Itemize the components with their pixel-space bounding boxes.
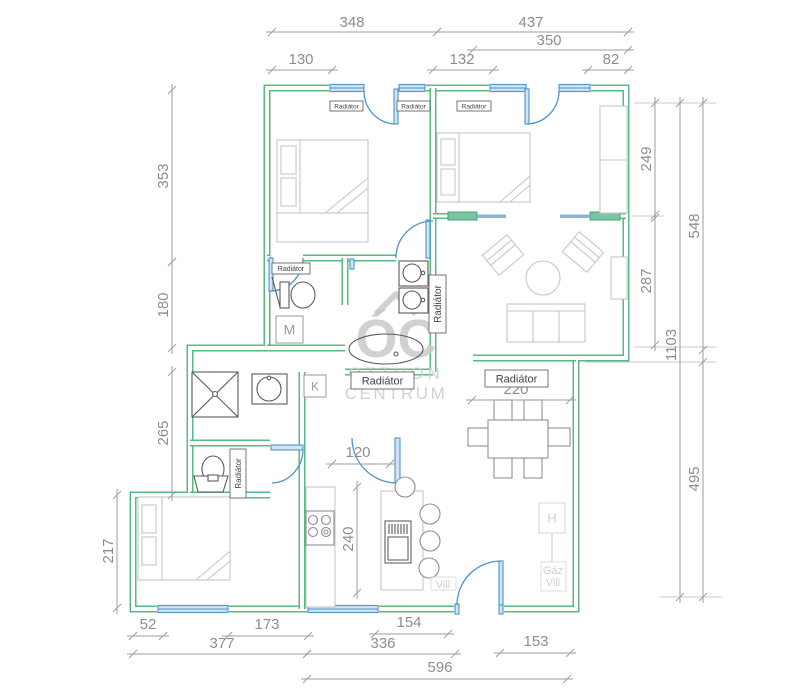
door-icon bbox=[364, 89, 398, 124]
window-icon bbox=[158, 606, 228, 613]
radiator-label-text: Radiátor bbox=[362, 375, 404, 387]
dimension-value: 249 bbox=[638, 146, 655, 171]
dimension-value: 353 bbox=[155, 163, 172, 188]
dimension-132: 132 bbox=[427, 51, 499, 74]
dimension-240: 240 bbox=[340, 481, 361, 599]
utility-label: Vill bbox=[546, 577, 560, 589]
radiator-label: Radiátor bbox=[272, 263, 310, 274]
dimension-353: 353 bbox=[155, 84, 176, 268]
utility-label: Vill bbox=[436, 579, 450, 591]
dimension-value: 82 bbox=[603, 51, 620, 68]
radiator-label-text: Radiátor bbox=[433, 284, 444, 322]
dimension-value: 180 bbox=[155, 292, 172, 317]
dimension-287: 287 bbox=[638, 212, 659, 351]
dimension-value: 495 bbox=[686, 466, 703, 491]
room-marker-text: H bbox=[547, 511, 556, 526]
room-marker-M: M bbox=[276, 316, 303, 343]
toilet-icon bbox=[194, 456, 228, 492]
dining-set-icon bbox=[468, 400, 570, 478]
room-marker-text: M bbox=[284, 322, 296, 338]
dimension-value: 153 bbox=[523, 633, 548, 650]
floor-plan-canvas: ÓC OTTHON CENTRUM bbox=[0, 0, 800, 696]
window-icon bbox=[559, 85, 590, 92]
armchair-icon bbox=[482, 235, 523, 275]
dimension-value: 350 bbox=[536, 32, 561, 49]
dimension-180: 180 bbox=[155, 256, 176, 354]
stove-icon bbox=[306, 511, 334, 545]
wardrobe-icon bbox=[600, 106, 627, 213]
window-icon bbox=[399, 85, 425, 92]
dimension-120: 120 bbox=[326, 444, 396, 468]
dimension-value: 287 bbox=[638, 268, 655, 293]
radiator-label-text: Radiátor bbox=[401, 103, 426, 110]
radiator-label-text: Radiátor bbox=[334, 103, 359, 110]
dimension-548: 548 bbox=[686, 97, 707, 356]
window-icon bbox=[490, 85, 526, 92]
dimension-value: 120 bbox=[345, 444, 370, 461]
dimension-336: 336 bbox=[301, 635, 461, 658]
dimension-value: 437 bbox=[518, 14, 543, 31]
dimension-value: 265 bbox=[155, 420, 172, 445]
watermark-initials: ÓC bbox=[356, 309, 437, 369]
radiator-label: Radiátor bbox=[397, 101, 430, 111]
dimension-130: 130 bbox=[266, 51, 338, 74]
dimension-249: 249 bbox=[638, 97, 659, 221]
sink-icon bbox=[252, 374, 287, 404]
radiator-label: Radiátor bbox=[330, 101, 363, 111]
sliding-door-icon bbox=[448, 212, 620, 220]
sink-icon bbox=[399, 288, 428, 313]
dimension-377: 377 bbox=[127, 635, 313, 658]
room-marker-text: K bbox=[311, 379, 319, 393]
dimension-value: 377 bbox=[209, 635, 234, 652]
room-marker-H: H bbox=[539, 503, 565, 533]
dimension-value: 173 bbox=[254, 616, 279, 633]
dimension-437: 437 bbox=[431, 14, 634, 36]
door-icon bbox=[271, 445, 303, 483]
window-icon bbox=[330, 85, 364, 92]
room-marker-K: K bbox=[304, 375, 326, 397]
dimension-596: 596 bbox=[301, 659, 573, 683]
floor-plan-page: ÓC OTTHON CENTRUM bbox=[0, 0, 800, 696]
dimension-153: 153 bbox=[494, 633, 576, 657]
side-table-icon bbox=[611, 257, 627, 299]
oven-icon bbox=[385, 521, 411, 563]
dimension-348: 348 bbox=[266, 14, 443, 36]
shower-icon bbox=[192, 372, 238, 417]
dimension-value: 548 bbox=[686, 213, 703, 238]
radiator-label-text: Radiátor bbox=[234, 458, 243, 489]
dimension-value: 336 bbox=[370, 635, 395, 652]
dimension-value: 348 bbox=[339, 14, 364, 31]
coffee-table-icon bbox=[526, 261, 560, 295]
dimension-value: 217 bbox=[100, 538, 117, 563]
dimension-value: 52 bbox=[140, 616, 157, 633]
dimension-value: 596 bbox=[427, 659, 452, 676]
bed-icon bbox=[277, 140, 368, 242]
dimension-265: 265 bbox=[155, 366, 176, 501]
dimension-value: 132 bbox=[449, 51, 474, 68]
dimension-173: 173 bbox=[222, 616, 314, 640]
radiator-label: Radiátor bbox=[457, 101, 491, 111]
dimension-1103: 1103 bbox=[663, 97, 684, 603]
dimension-52: 52 bbox=[127, 616, 169, 640]
sofa-icon bbox=[507, 304, 585, 342]
dimension-82: 82 bbox=[582, 51, 634, 74]
door-icon bbox=[525, 89, 559, 124]
radiator-label: Radiátor bbox=[230, 449, 246, 498]
radiator-label-text: Radiátor bbox=[278, 266, 305, 273]
radiator-label-text: Radiátor bbox=[496, 373, 538, 385]
dimension-value: 154 bbox=[396, 614, 421, 631]
armchair-icon bbox=[562, 232, 603, 272]
radiator-label: Radiátor bbox=[351, 372, 414, 389]
radiator-label: Radiátor bbox=[485, 370, 548, 387]
dimension-value: 130 bbox=[288, 51, 313, 68]
radiator-label: Radiátor bbox=[429, 275, 446, 333]
utility-label: Gáz bbox=[543, 565, 563, 577]
sink-icon bbox=[399, 261, 428, 286]
dimension-495: 495 bbox=[686, 356, 707, 603]
bed-icon bbox=[138, 497, 230, 580]
bed-icon bbox=[437, 133, 530, 202]
dimension-217: 217 bbox=[100, 489, 121, 614]
dimension-value: 240 bbox=[340, 526, 357, 551]
radiator-label-text: Radiátor bbox=[462, 103, 487, 110]
dimension-value: 1103 bbox=[663, 329, 680, 361]
